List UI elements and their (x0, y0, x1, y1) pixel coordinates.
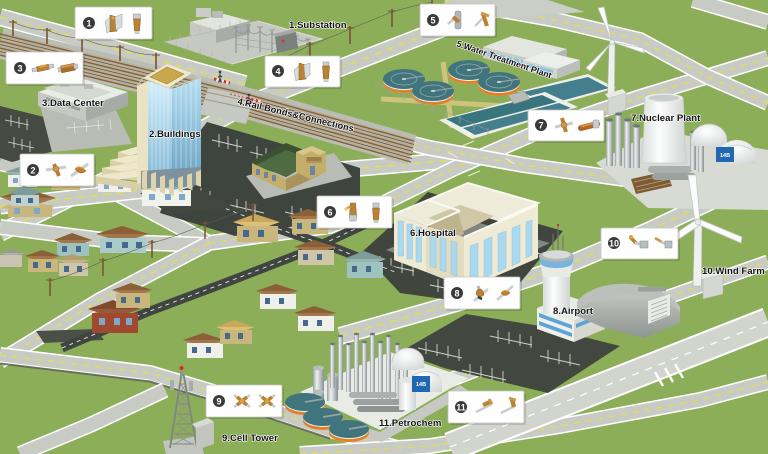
svg-text:8.Airport: 8.Airport (553, 306, 594, 317)
svg-text:1: 1 (86, 19, 91, 29)
svg-text:7.Nuclear Plant: 7.Nuclear Plant (631, 113, 701, 124)
svg-text:11: 11 (456, 403, 466, 413)
svg-text:9.Cell Tower: 9.Cell Tower (222, 433, 278, 444)
svg-text:14B: 14B (720, 153, 730, 159)
svg-text:3.Data Center: 3.Data Center (42, 98, 104, 109)
svg-text:3: 3 (17, 64, 22, 74)
svg-text:11.Petrochem: 11.Petrochem (379, 418, 441, 429)
svg-text:2: 2 (30, 166, 35, 176)
svg-text:6: 6 (327, 208, 332, 218)
svg-text:10.Wind Farm: 10.Wind Farm (702, 266, 765, 277)
svg-text:6.Hospital: 6.Hospital (410, 228, 456, 239)
svg-text:2.Buildings: 2.Buildings (149, 129, 201, 140)
svg-text:9: 9 (216, 397, 221, 407)
svg-text:1.Substation: 1.Substation (289, 20, 347, 31)
svg-text:8: 8 (454, 289, 459, 299)
svg-text:14B: 14B (416, 382, 426, 388)
svg-text:10: 10 (609, 239, 619, 249)
svg-text:7: 7 (538, 121, 543, 131)
svg-text:4: 4 (275, 67, 280, 77)
svg-text:5: 5 (430, 16, 435, 26)
